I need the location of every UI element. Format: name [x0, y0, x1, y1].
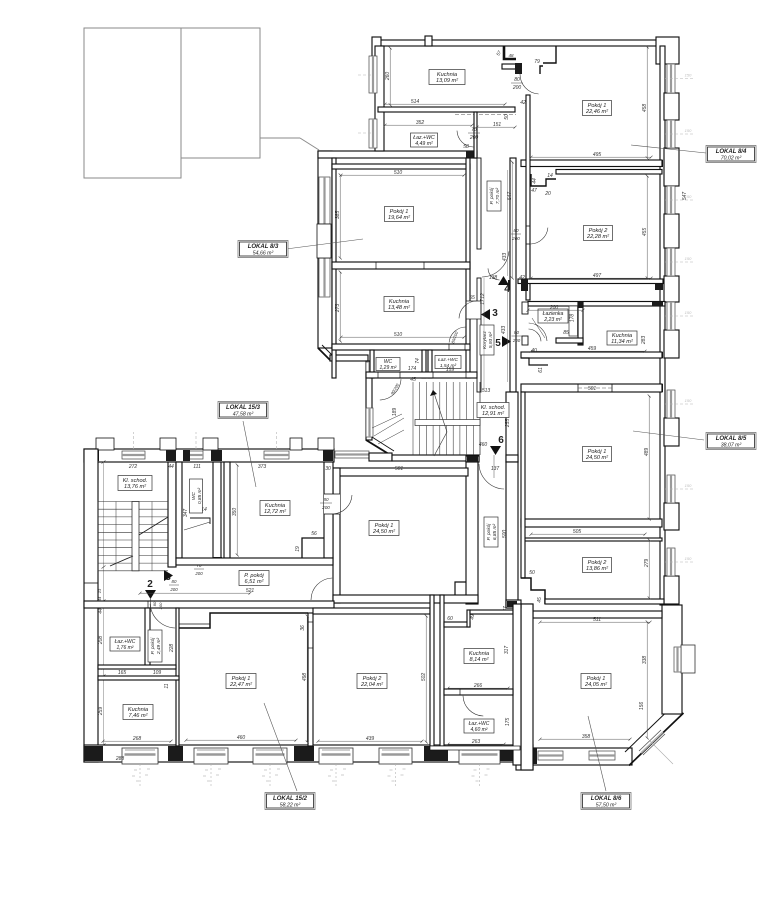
svg-text:501: 501 — [588, 386, 597, 392]
svg-text:6,51 m²: 6,51 m² — [245, 579, 265, 585]
svg-text:189: 189 — [392, 408, 398, 417]
svg-text:Łaz.+WC: Łaz.+WC — [438, 357, 458, 363]
svg-text:151: 151 — [493, 122, 502, 128]
svg-text:338: 338 — [642, 656, 648, 665]
svg-text:WC: WC — [191, 491, 197, 500]
svg-text:521: 521 — [246, 588, 255, 594]
svg-text:200: 200 — [194, 571, 203, 576]
svg-text:352: 352 — [416, 120, 425, 126]
svg-text:Pokój 1: Pokój 1 — [390, 209, 409, 215]
svg-text:385: 385 — [335, 211, 341, 220]
svg-text:288: 288 — [115, 756, 125, 762]
svg-text:70,02 m²: 70,02 m² — [721, 156, 742, 162]
svg-text:79: 79 — [534, 59, 540, 65]
svg-text:22,28 m²: 22,28 m² — [586, 234, 610, 240]
svg-text:150: 150 — [685, 310, 692, 315]
svg-text:511: 511 — [593, 617, 601, 623]
svg-text:7,70 m²: 7,70 m² — [495, 187, 501, 204]
svg-text:22,47 m²: 22,47 m² — [229, 682, 253, 688]
svg-text:200: 200 — [469, 135, 479, 141]
svg-text:Pokój 2: Pokój 2 — [588, 560, 608, 566]
svg-text:150: 150 — [685, 398, 692, 403]
svg-text:547: 547 — [507, 192, 513, 201]
svg-text:350: 350 — [232, 508, 238, 517]
svg-text:80: 80 — [172, 579, 177, 584]
svg-text:266: 266 — [473, 683, 483, 689]
svg-text:Pokój 2: Pokój 2 — [589, 228, 609, 234]
svg-text:4: 4 — [504, 284, 510, 295]
svg-text:283: 283 — [641, 336, 647, 346]
svg-text:WC: WC — [384, 359, 393, 365]
svg-text:Kuchnia: Kuchnia — [265, 503, 285, 509]
svg-text:14: 14 — [547, 173, 553, 179]
svg-text:514: 514 — [411, 99, 420, 105]
svg-text:156: 156 — [639, 702, 645, 711]
svg-text:279: 279 — [644, 559, 650, 569]
svg-text:1,29 m²: 1,29 m² — [380, 365, 397, 371]
svg-text:358: 358 — [582, 734, 591, 740]
svg-text:45: 45 — [537, 597, 543, 603]
svg-text:61: 61 — [538, 367, 544, 373]
svg-text:LOKAL 8/6: LOKAL 8/6 — [591, 796, 622, 802]
svg-text:200: 200 — [512, 338, 521, 343]
svg-text:200: 200 — [512, 85, 522, 91]
svg-text:19,64 m²: 19,64 m² — [388, 215, 411, 221]
svg-text:5: 5 — [495, 338, 501, 349]
svg-text:505: 505 — [573, 529, 582, 535]
svg-text:510: 510 — [394, 170, 403, 176]
svg-text:175: 175 — [505, 718, 511, 727]
svg-text:58,22 m²: 58,22 m² — [280, 803, 301, 809]
svg-text:13,86 m²: 13,86 m² — [586, 566, 609, 572]
svg-text:150: 150 — [685, 483, 692, 488]
svg-text:Korytarz: Korytarz — [482, 330, 488, 348]
svg-text:12,91 m²: 12,91 m² — [482, 411, 505, 417]
svg-text:138: 138 — [489, 275, 498, 281]
svg-text:272: 272 — [128, 464, 138, 470]
svg-text:263: 263 — [471, 739, 481, 745]
svg-text:44: 44 — [532, 178, 538, 184]
svg-text:Pokój 1: Pokój 1 — [375, 523, 394, 529]
svg-text:13,09 m²: 13,09 m² — [436, 78, 459, 84]
svg-text:LOKAL 15/3: LOKAL 15/3 — [226, 405, 261, 411]
svg-text:Pokój 1: Pokój 1 — [587, 676, 606, 682]
svg-text:42: 42 — [520, 100, 526, 106]
svg-text:50: 50 — [504, 114, 510, 120]
svg-text:255: 255 — [505, 419, 511, 429]
svg-text:54,66 m²: 54,66 m² — [253, 251, 274, 257]
svg-text:460: 460 — [237, 735, 246, 741]
svg-text:LOKAL 8/3: LOKAL 8/3 — [248, 244, 279, 250]
svg-text:200: 200 — [549, 305, 559, 311]
svg-text:260: 260 — [385, 72, 391, 82]
svg-text:111: 111 — [193, 464, 201, 470]
svg-text:433: 433 — [501, 326, 507, 335]
svg-text:44: 44 — [98, 608, 104, 614]
svg-text:42: 42 — [519, 275, 525, 281]
svg-text:P. pokój: P. pokój — [489, 187, 495, 205]
svg-text:273: 273 — [335, 304, 341, 314]
svg-text:P. pokój: P. pokój — [486, 523, 492, 541]
svg-text:Kuchnia: Kuchnia — [469, 651, 489, 657]
svg-text:LOKAL 8/4: LOKAL 8/4 — [716, 149, 747, 155]
svg-text:7,46 m²: 7,46 m² — [129, 713, 149, 719]
svg-text:Łaz.+WC: Łaz.+WC — [469, 721, 490, 727]
svg-text:2: 2 — [147, 579, 153, 590]
svg-text:200: 200 — [169, 587, 178, 592]
svg-text:495: 495 — [593, 152, 602, 158]
svg-text:4,60 m²: 4,60 m² — [471, 727, 488, 733]
svg-text:55: 55 — [469, 295, 475, 301]
svg-text:24,05 m²: 24,05 m² — [584, 682, 608, 688]
svg-text:159: 159 — [446, 367, 455, 373]
svg-text:13,48 m²: 13,48 m² — [388, 305, 411, 311]
svg-text:LOKAL 15/2: LOKAL 15/2 — [273, 796, 308, 802]
svg-text:200: 200 — [511, 236, 520, 241]
svg-text:6,85 m²: 6,85 m² — [492, 523, 498, 540]
svg-text:24,50 m²: 24,50 m² — [372, 529, 396, 535]
svg-text:Pokój 1: Pokój 1 — [588, 449, 607, 455]
svg-text:150: 150 — [685, 73, 692, 78]
svg-text:47,58 m²: 47,58 m² — [233, 412, 254, 418]
svg-text:11,34 m²: 11,34 m² — [611, 339, 634, 345]
svg-text:109: 109 — [153, 670, 162, 676]
svg-text:57,50 m²: 57,50 m² — [596, 803, 617, 809]
svg-text:460: 460 — [479, 442, 488, 448]
svg-text:Kl. schod.: Kl. schod. — [123, 478, 148, 484]
svg-text:259: 259 — [98, 707, 104, 717]
svg-text:268: 268 — [132, 736, 142, 742]
svg-text:Łaz.+WC: Łaz.+WC — [115, 639, 136, 645]
svg-text:165: 165 — [118, 670, 127, 676]
svg-text:48: 48 — [508, 53, 514, 58]
svg-text:Kuchnia: Kuchnia — [128, 707, 148, 713]
svg-text:228: 228 — [169, 644, 175, 654]
svg-text:13: 13 — [97, 588, 102, 593]
svg-text:P. pokój: P. pokój — [244, 573, 264, 579]
svg-text:439: 439 — [366, 736, 375, 742]
svg-text:17: 17 — [480, 299, 486, 305]
svg-text:513: 513 — [482, 388, 491, 394]
svg-text:5,93 m²: 5,93 m² — [488, 331, 494, 348]
svg-text:11: 11 — [164, 683, 170, 688]
svg-text:85: 85 — [563, 330, 569, 336]
svg-text:Łazienka: Łazienka — [543, 311, 564, 317]
svg-text:458: 458 — [642, 104, 648, 113]
svg-text:80: 80 — [323, 497, 329, 502]
svg-text:44: 44 — [97, 596, 102, 601]
svg-text:19: 19 — [295, 546, 301, 552]
svg-text:80: 80 — [514, 77, 520, 83]
svg-text:60: 60 — [447, 616, 453, 622]
svg-text:Kuchnia: Kuchnia — [389, 299, 409, 305]
svg-text:50: 50 — [529, 570, 535, 576]
svg-text:47: 47 — [531, 188, 537, 194]
svg-text:44: 44 — [168, 464, 174, 470]
svg-text:174: 174 — [408, 366, 417, 372]
svg-text:Pokój 1: Pokój 1 — [232, 676, 251, 682]
svg-text:200: 200 — [158, 602, 163, 610]
svg-text:Kuchnia: Kuchnia — [437, 72, 457, 78]
svg-text:70: 70 — [471, 127, 477, 133]
svg-text:347: 347 — [183, 509, 189, 518]
svg-text:178: 178 — [570, 314, 576, 323]
svg-text:137: 137 — [491, 466, 500, 472]
svg-text:Kl. schod.: Kl. schod. — [481, 405, 506, 411]
svg-text:317: 317 — [504, 646, 510, 655]
svg-text:150: 150 — [685, 128, 692, 133]
svg-text:497: 497 — [593, 273, 602, 279]
svg-text:22,04 m²: 22,04 m² — [360, 682, 384, 688]
svg-text:498: 498 — [302, 673, 308, 682]
svg-text:80: 80 — [152, 601, 157, 606]
svg-text:58: 58 — [463, 144, 469, 150]
svg-text:501: 501 — [395, 466, 404, 472]
svg-text:6: 6 — [498, 435, 504, 446]
svg-text:80: 80 — [514, 330, 519, 335]
svg-text:Pokój 2: Pokój 2 — [363, 676, 383, 682]
svg-text:2,23 m²: 2,23 m² — [543, 317, 562, 323]
svg-text:49: 49 — [470, 614, 476, 620]
svg-text:455: 455 — [642, 228, 648, 237]
svg-text:36: 36 — [300, 625, 306, 631]
svg-text:56: 56 — [311, 531, 317, 537]
svg-text:208: 208 — [98, 636, 104, 646]
svg-text:40: 40 — [531, 348, 537, 354]
svg-text:1,76 m²: 1,76 m² — [117, 645, 134, 651]
svg-text:30: 30 — [325, 466, 331, 472]
svg-text:P. pokój: P. pokój — [150, 637, 156, 655]
svg-text:3: 3 — [492, 308, 498, 319]
svg-text:489: 489 — [644, 448, 650, 457]
svg-text:510: 510 — [394, 332, 403, 338]
svg-text:20: 20 — [544, 191, 551, 197]
svg-text:459: 459 — [588, 346, 597, 352]
svg-text:13,76 m²: 13,76 m² — [124, 484, 147, 490]
svg-text:502: 502 — [421, 673, 427, 682]
svg-text:24,50 m²: 24,50 m² — [585, 455, 609, 461]
svg-text:38,07 m²: 38,07 m² — [721, 443, 742, 449]
svg-text:373: 373 — [258, 464, 267, 470]
svg-text:12,72 m²: 12,72 m² — [264, 509, 287, 515]
svg-text:Kuchnia: Kuchnia — [612, 333, 632, 339]
svg-text:547: 547 — [682, 192, 688, 201]
svg-text:Pokój 1: Pokój 1 — [588, 103, 607, 109]
svg-text:2,49 m²: 2,49 m² — [156, 637, 162, 655]
svg-text:45: 45 — [410, 377, 416, 383]
svg-text:12: 12 — [480, 293, 486, 299]
svg-text:74: 74 — [415, 358, 421, 364]
svg-text:150: 150 — [685, 556, 692, 561]
svg-text:8,14 m²: 8,14 m² — [470, 657, 490, 663]
svg-text:200: 200 — [321, 505, 330, 510]
svg-text:0,85 m²: 0,85 m² — [197, 487, 203, 504]
svg-text:150: 150 — [685, 256, 692, 261]
svg-text:500: 500 — [502, 530, 508, 539]
svg-text:Łaz.+WC: Łaz.+WC — [413, 135, 435, 141]
svg-text:LOKAL 8/5: LOKAL 8/5 — [716, 436, 747, 442]
svg-text:4,49 m²: 4,49 m² — [415, 141, 433, 147]
svg-text:22,46 m²: 22,46 m² — [585, 109, 609, 115]
svg-text:433: 433 — [502, 253, 508, 262]
svg-text:80: 80 — [513, 228, 519, 233]
